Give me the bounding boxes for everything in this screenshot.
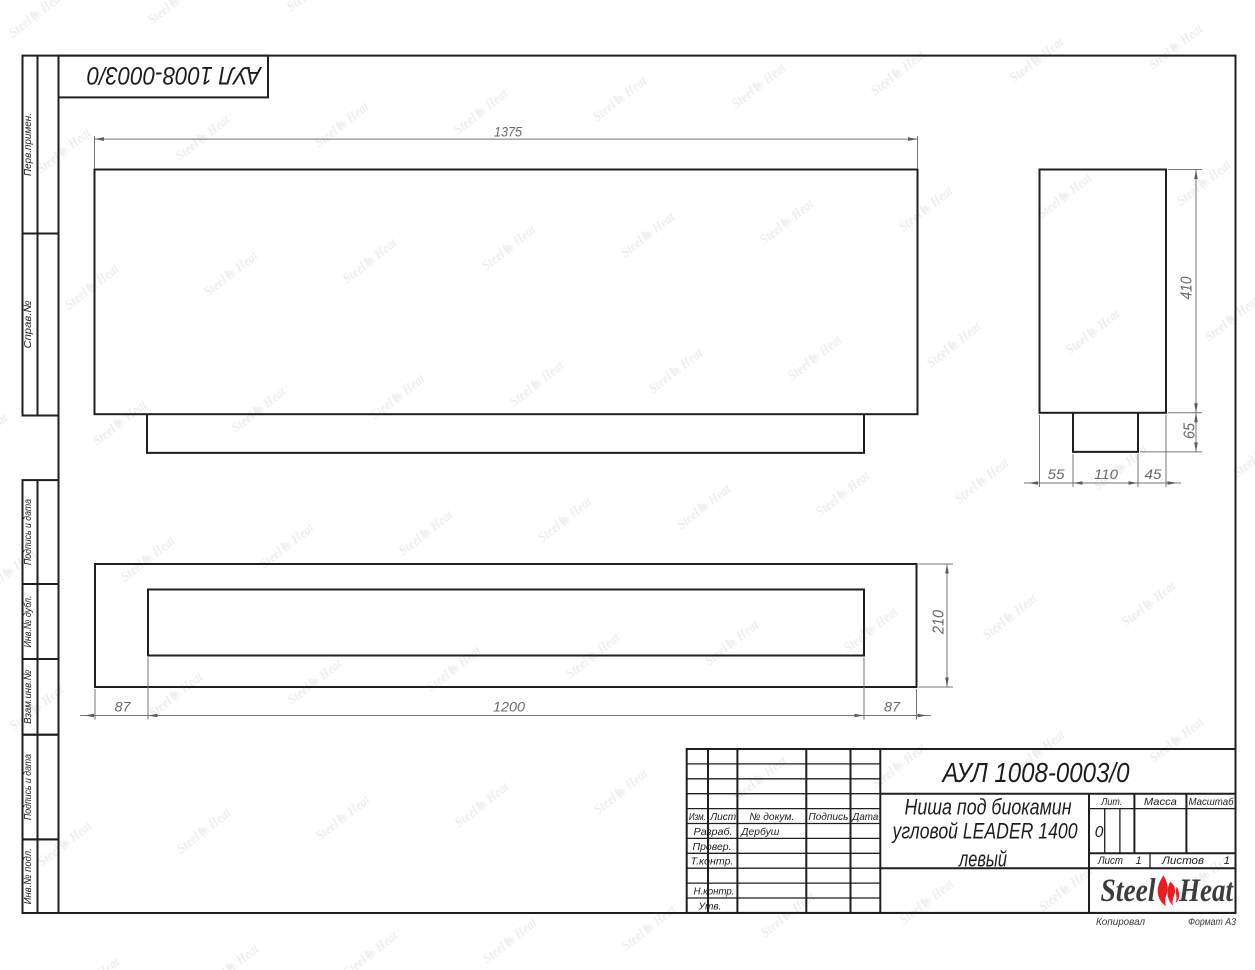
svg-text:Масса: Масса: [1144, 796, 1177, 808]
svg-text:Справ.№: Справ.№: [22, 301, 34, 349]
svg-text:Масштаб: Масштаб: [1189, 796, 1235, 808]
svg-text:левый: левый: [958, 847, 1007, 872]
svg-text:Лит.: Лит.: [1100, 796, 1122, 808]
svg-text:0: 0: [1095, 824, 1104, 841]
svg-text:Подпись и дата: Подпись и дата: [22, 754, 34, 820]
svg-text:Т.контр.: Т.контр.: [691, 856, 734, 868]
svg-text:1375: 1375: [494, 123, 522, 139]
svg-text:угловой LEADER 1400: угловой LEADER 1400: [891, 819, 1078, 844]
svg-text:Перв.примен.: Перв.примен.: [22, 113, 34, 176]
svg-text:Н.контр.: Н.контр.: [694, 886, 735, 898]
svg-text:Листов: Листов: [1161, 855, 1204, 867]
svg-text:Лист: Лист: [1097, 855, 1123, 867]
svg-text:Утв.: Утв.: [698, 900, 722, 912]
svg-text:Формат A3: Формат A3: [1188, 916, 1236, 928]
svg-text:Ниша под биокамин: Ниша под биокамин: [905, 795, 1072, 820]
svg-text:45: 45: [1145, 466, 1162, 482]
svg-text:Инв.№ подл.: Инв.№ подл.: [22, 848, 34, 904]
svg-text:Подпись: Подпись: [808, 811, 848, 823]
svg-text:Дербуш: Дербуш: [740, 826, 779, 838]
svg-text:АУЛ 1008-0003/0: АУЛ 1008-0003/0: [87, 61, 263, 89]
svg-text:87: 87: [884, 699, 901, 715]
svg-text:55: 55: [1048, 466, 1065, 482]
svg-text:№ докум.: № докум.: [749, 811, 794, 823]
svg-text:Дата: Дата: [851, 811, 878, 823]
svg-text:Steel: Steel: [1101, 873, 1157, 909]
svg-text:210: 210: [931, 610, 948, 635]
svg-text:Инв.№ дубл.: Инв.№ дубл.: [22, 596, 34, 648]
svg-text:87: 87: [115, 699, 132, 715]
svg-text:Heat: Heat: [1178, 873, 1233, 909]
svg-text:Копировал: Копировал: [1096, 916, 1145, 928]
svg-text:65: 65: [1182, 423, 1199, 439]
svg-text:Изм.: Изм.: [689, 811, 706, 823]
svg-text:АУЛ 1008-0003/0: АУЛ 1008-0003/0: [941, 757, 1130, 788]
svg-text:1200: 1200: [493, 699, 525, 715]
svg-text:110: 110: [1094, 466, 1118, 482]
svg-text:1: 1: [1136, 855, 1142, 867]
svg-text:Лист: Лист: [709, 811, 736, 823]
svg-text:1: 1: [1224, 855, 1230, 867]
svg-text:410: 410: [1179, 276, 1196, 299]
svg-text:Провер.: Провер.: [693, 841, 732, 853]
svg-text:Взам.инв.№: Взам.инв.№: [22, 670, 34, 724]
svg-text:Разраб.: Разраб.: [694, 826, 733, 838]
svg-text:Подпись и дата: Подпись и дата: [22, 499, 34, 565]
